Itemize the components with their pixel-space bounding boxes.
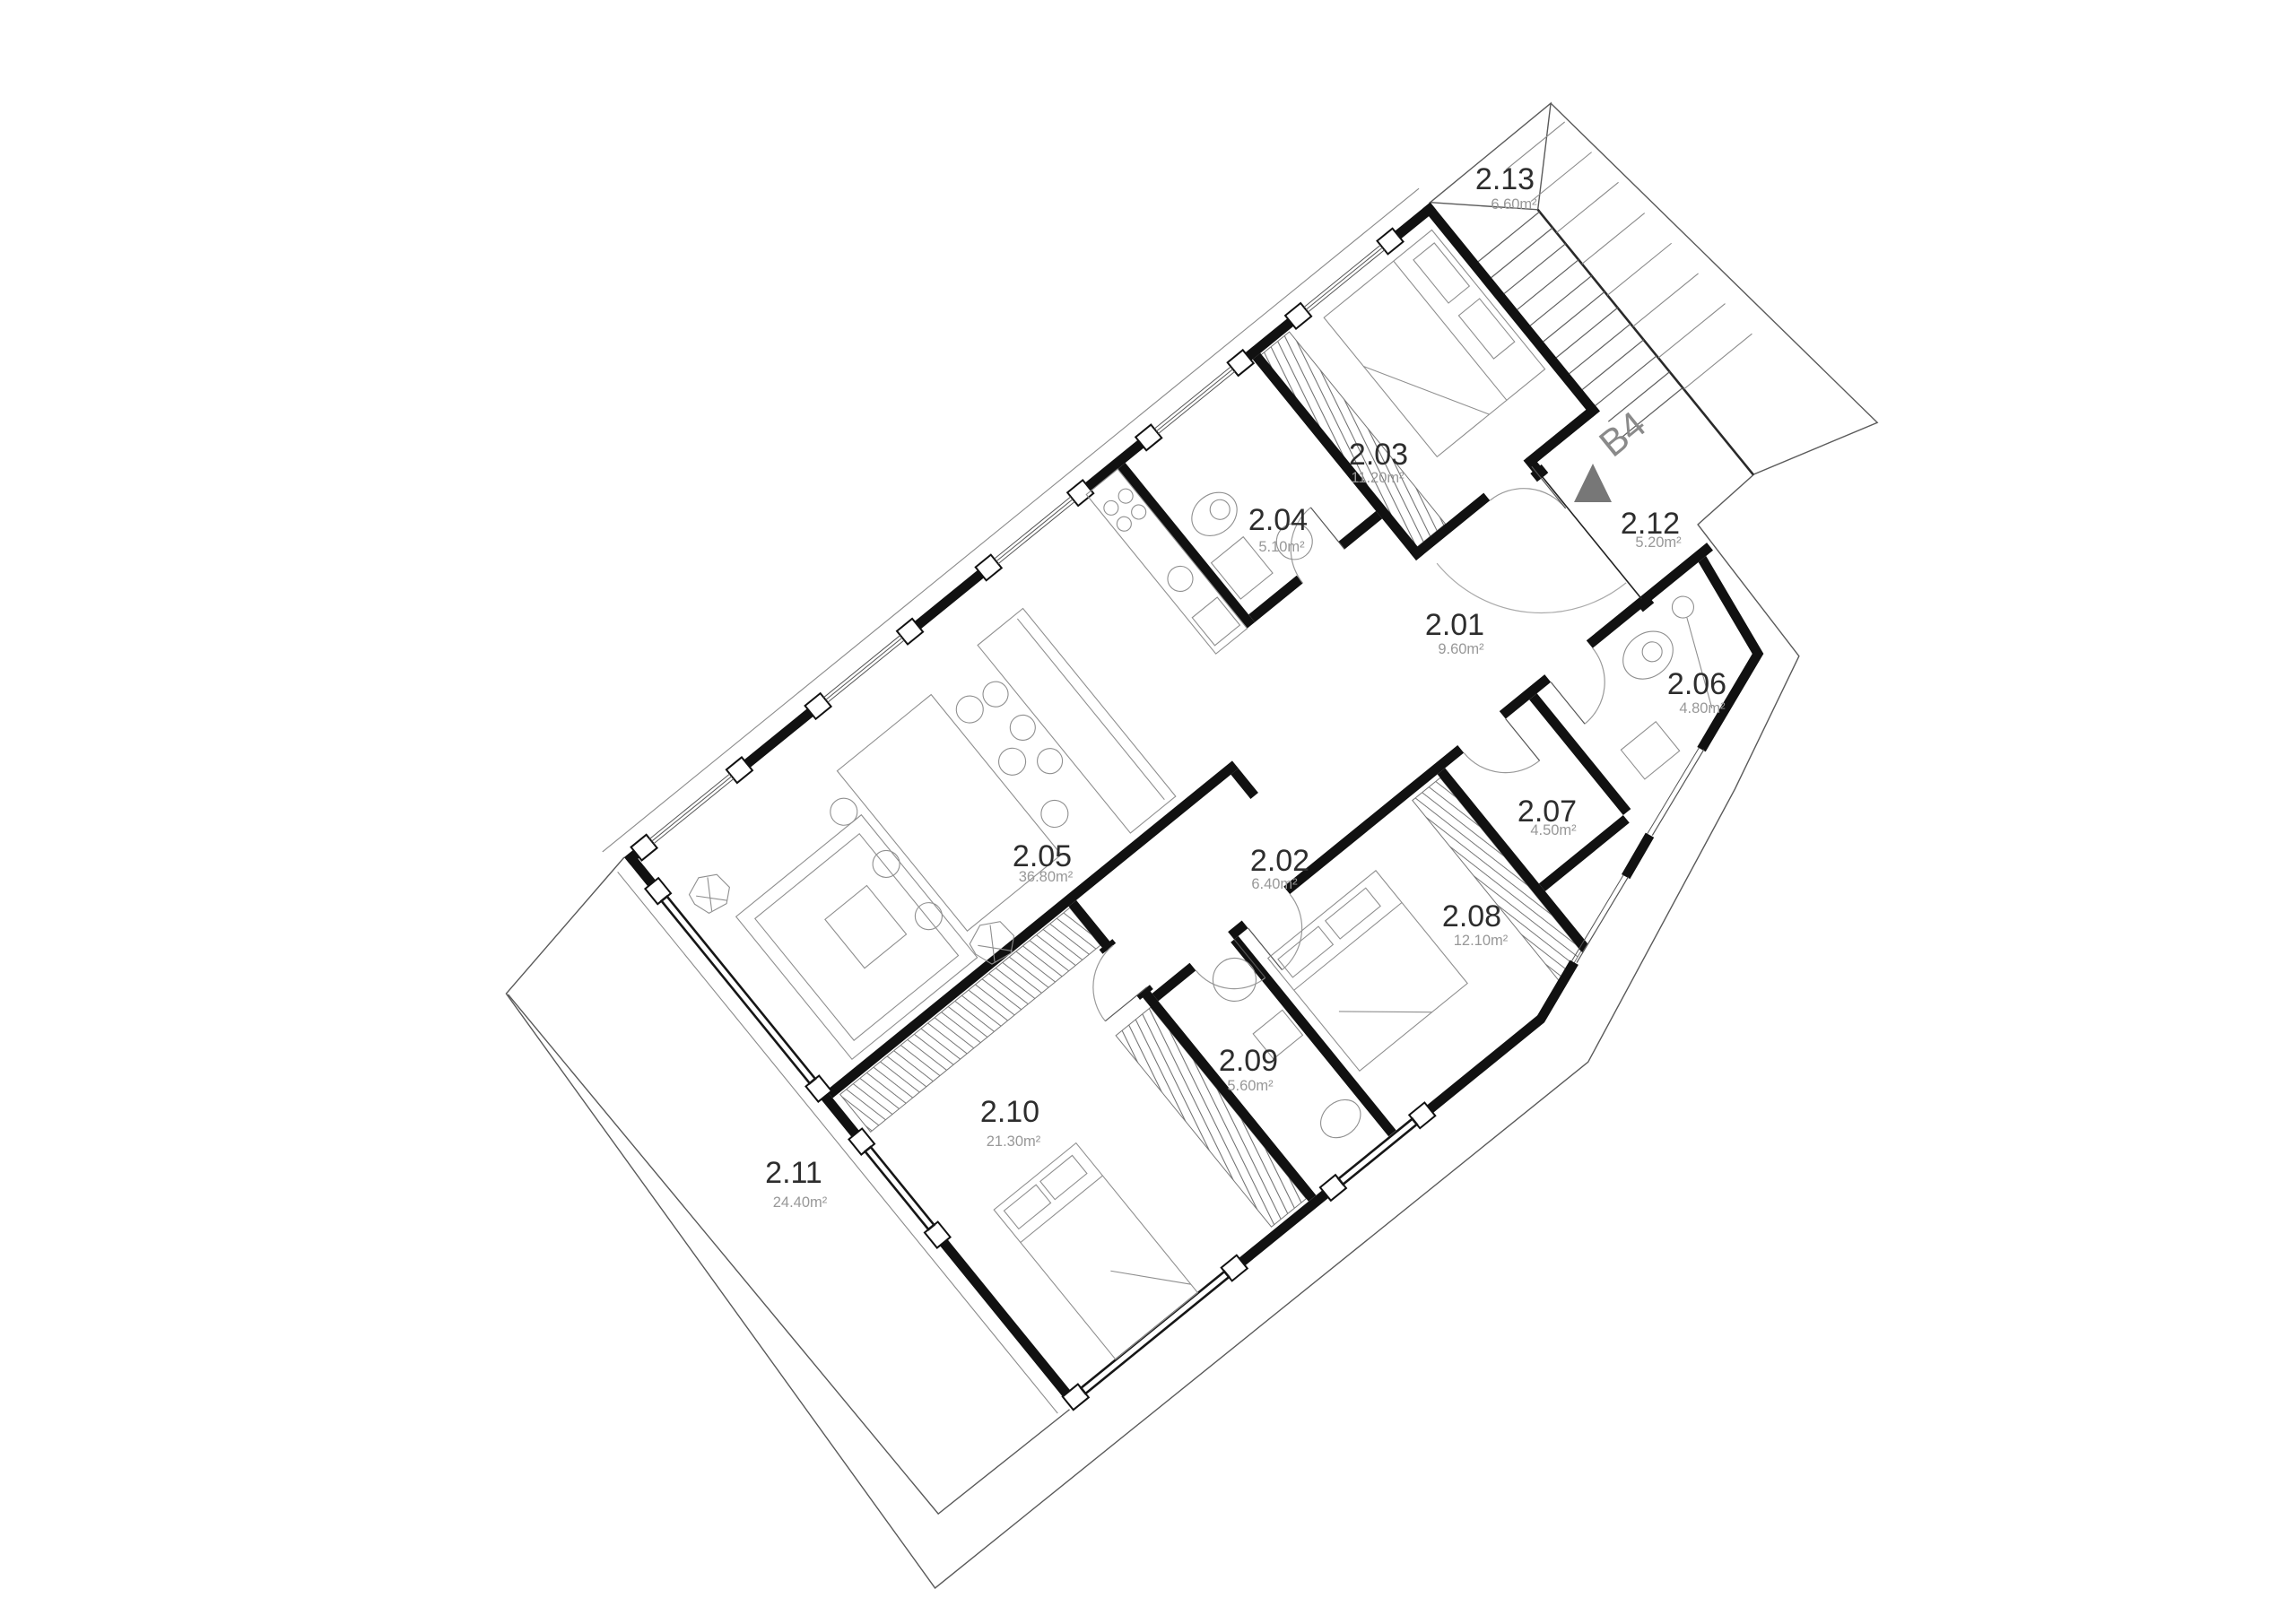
svg-text:9.60m²: 9.60m²	[1438, 641, 1484, 657]
svg-text:36.80m²: 36.80m²	[1019, 869, 1074, 885]
svg-text:2.11: 2.11	[765, 1156, 822, 1190]
svg-text:B4: B4	[1591, 403, 1654, 465]
svg-text:12.10m²: 12.10m²	[1454, 933, 1509, 949]
svg-text:6.60m²: 6.60m²	[1491, 196, 1537, 213]
svg-text:24.40m²: 24.40m²	[773, 1194, 828, 1211]
svg-text:6.40m²: 6.40m²	[1251, 876, 1298, 892]
svg-text:4.80m²: 4.80m²	[1679, 700, 1726, 716]
svg-text:4.50m²: 4.50m²	[1530, 822, 1577, 838]
svg-text:5.60m²: 5.60m²	[1227, 1078, 1274, 1094]
svg-text:11.20m²: 11.20m²	[1351, 470, 1405, 486]
svg-text:5.10m²: 5.10m²	[1258, 539, 1305, 555]
svg-text:21.30m²: 21.30m²	[987, 1133, 1041, 1150]
svg-text:2.03: 2.03	[1349, 438, 1408, 472]
svg-text:2.02: 2.02	[1250, 844, 1309, 878]
svg-text:5.20m²: 5.20m²	[1635, 534, 1682, 551]
svg-text:2.13: 2.13	[1475, 162, 1535, 196]
svg-text:2.01: 2.01	[1425, 608, 1484, 642]
svg-text:2.06: 2.06	[1667, 667, 1726, 701]
svg-text:2.09: 2.09	[1219, 1044, 1278, 1078]
svg-text:2.04: 2.04	[1248, 503, 1308, 537]
svg-text:2.08: 2.08	[1442, 899, 1501, 934]
svg-text:2.10: 2.10	[980, 1095, 1039, 1129]
